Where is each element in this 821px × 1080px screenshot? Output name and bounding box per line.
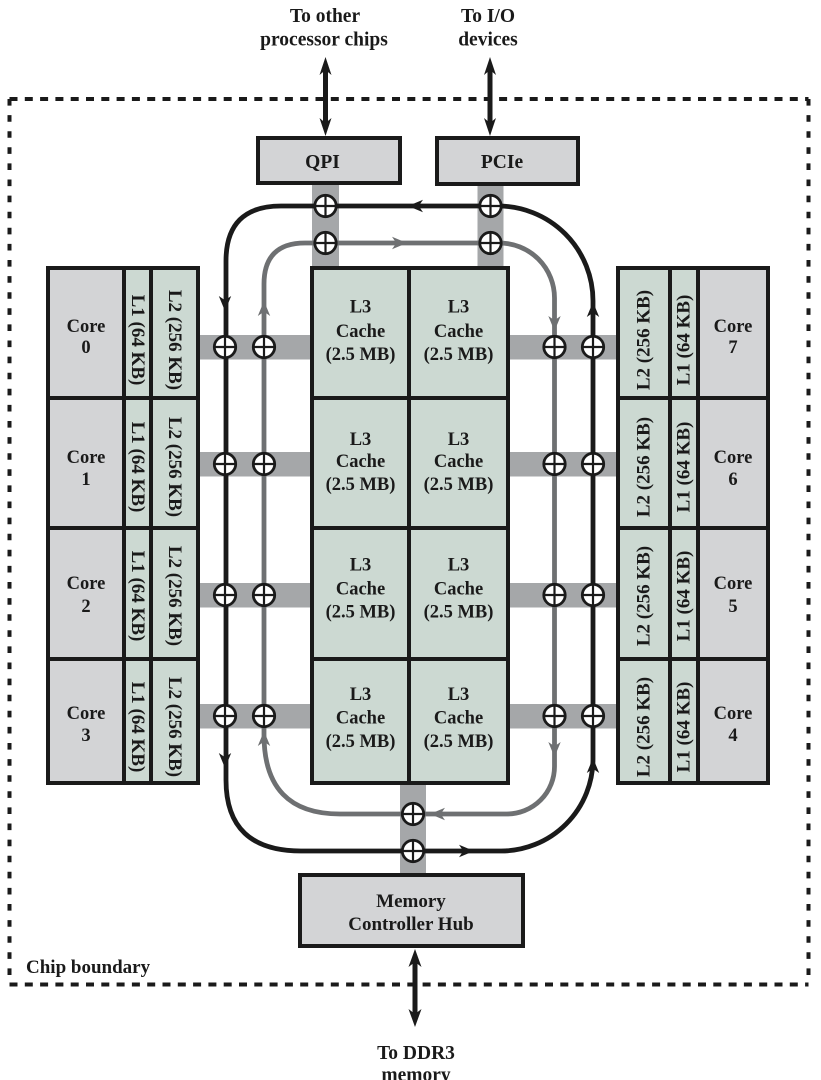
svg-text:Core: Core	[714, 317, 753, 337]
svg-text:memory: memory	[381, 1065, 451, 1080]
svg-text:(2.5 MB): (2.5 MB)	[424, 603, 494, 623]
svg-text:(2.5 MB): (2.5 MB)	[424, 732, 494, 752]
svg-text:QPI: QPI	[305, 152, 340, 173]
svg-text:Cache: Cache	[336, 322, 385, 342]
svg-text:L1 (64 KB): L1 (64 KB)	[127, 682, 148, 773]
svg-text:(2.5 MB): (2.5 MB)	[326, 345, 396, 365]
svg-text:L1 (64 KB): L1 (64 KB)	[127, 295, 148, 386]
svg-text:Core: Core	[714, 448, 753, 468]
svg-text:L3: L3	[350, 430, 372, 450]
svg-text:L3: L3	[448, 556, 470, 576]
svg-text:L3: L3	[448, 685, 470, 705]
svg-text:3: 3	[81, 726, 90, 746]
svg-text:devices: devices	[458, 30, 518, 51]
svg-text:L2 (256 KB): L2 (256 KB)	[164, 417, 185, 517]
svg-text:Cache: Cache	[336, 580, 385, 600]
svg-text:L2 (256 KB): L2 (256 KB)	[164, 546, 185, 646]
svg-text:L3: L3	[350, 685, 372, 705]
svg-text:(2.5 MB): (2.5 MB)	[326, 732, 396, 752]
svg-text:2: 2	[81, 597, 90, 617]
svg-text:6: 6	[728, 470, 737, 490]
svg-text:L1 (64 KB): L1 (64 KB)	[127, 551, 148, 642]
svg-text:PCIe: PCIe	[481, 152, 524, 173]
svg-text:Cache: Cache	[336, 452, 385, 472]
svg-text:Cache: Cache	[434, 709, 483, 729]
svg-text:1: 1	[81, 470, 90, 490]
svg-text:L2 (256 KB): L2 (256 KB)	[634, 677, 655, 777]
svg-text:processor chips: processor chips	[260, 30, 388, 51]
svg-text:Core: Core	[714, 704, 753, 724]
svg-text:To other: To other	[290, 6, 361, 27]
svg-text:Cache: Cache	[434, 580, 483, 600]
svg-text:(2.5 MB): (2.5 MB)	[326, 475, 396, 495]
svg-text:To I/O: To I/O	[461, 6, 515, 27]
svg-text:Core: Core	[67, 574, 106, 594]
svg-text:Cache: Cache	[434, 452, 483, 472]
svg-text:Core: Core	[67, 317, 106, 337]
svg-text:Core: Core	[67, 704, 106, 724]
svg-text:To DDR3: To DDR3	[377, 1043, 455, 1064]
svg-text:Cache: Cache	[336, 709, 385, 729]
svg-text:Chip boundary: Chip boundary	[26, 957, 151, 978]
svg-text:L1 (64 KB): L1 (64 KB)	[127, 422, 148, 513]
svg-text:7: 7	[728, 338, 737, 358]
svg-text:(2.5 MB): (2.5 MB)	[424, 475, 494, 495]
svg-text:(2.5 MB): (2.5 MB)	[326, 603, 396, 623]
svg-text:L2 (256 KB): L2 (256 KB)	[634, 417, 655, 517]
svg-text:L1 (64 KB): L1 (64 KB)	[674, 682, 695, 773]
svg-text:L2 (256 KB): L2 (256 KB)	[164, 290, 185, 390]
svg-text:Memory: Memory	[376, 891, 446, 912]
svg-text:Controller Hub: Controller Hub	[348, 914, 473, 935]
svg-text:Core: Core	[67, 448, 106, 468]
svg-text:L3: L3	[448, 298, 470, 318]
svg-text:(2.5 MB): (2.5 MB)	[424, 345, 494, 365]
svg-text:L1 (64 KB): L1 (64 KB)	[674, 422, 695, 513]
svg-text:L2 (256 KB): L2 (256 KB)	[634, 546, 655, 646]
svg-text:L3: L3	[350, 298, 372, 318]
svg-text:4: 4	[728, 726, 737, 746]
svg-text:L2 (256 KB): L2 (256 KB)	[164, 677, 185, 777]
svg-text:L1 (64 KB): L1 (64 KB)	[674, 295, 695, 386]
svg-text:0: 0	[81, 338, 90, 358]
svg-text:5: 5	[728, 597, 737, 617]
svg-text:L3: L3	[350, 556, 372, 576]
svg-text:L1 (64 KB): L1 (64 KB)	[674, 551, 695, 642]
svg-text:Cache: Cache	[434, 322, 483, 342]
svg-text:L3: L3	[448, 430, 470, 450]
svg-text:L2 (256 KB): L2 (256 KB)	[634, 290, 655, 390]
svg-text:Core: Core	[714, 574, 753, 594]
